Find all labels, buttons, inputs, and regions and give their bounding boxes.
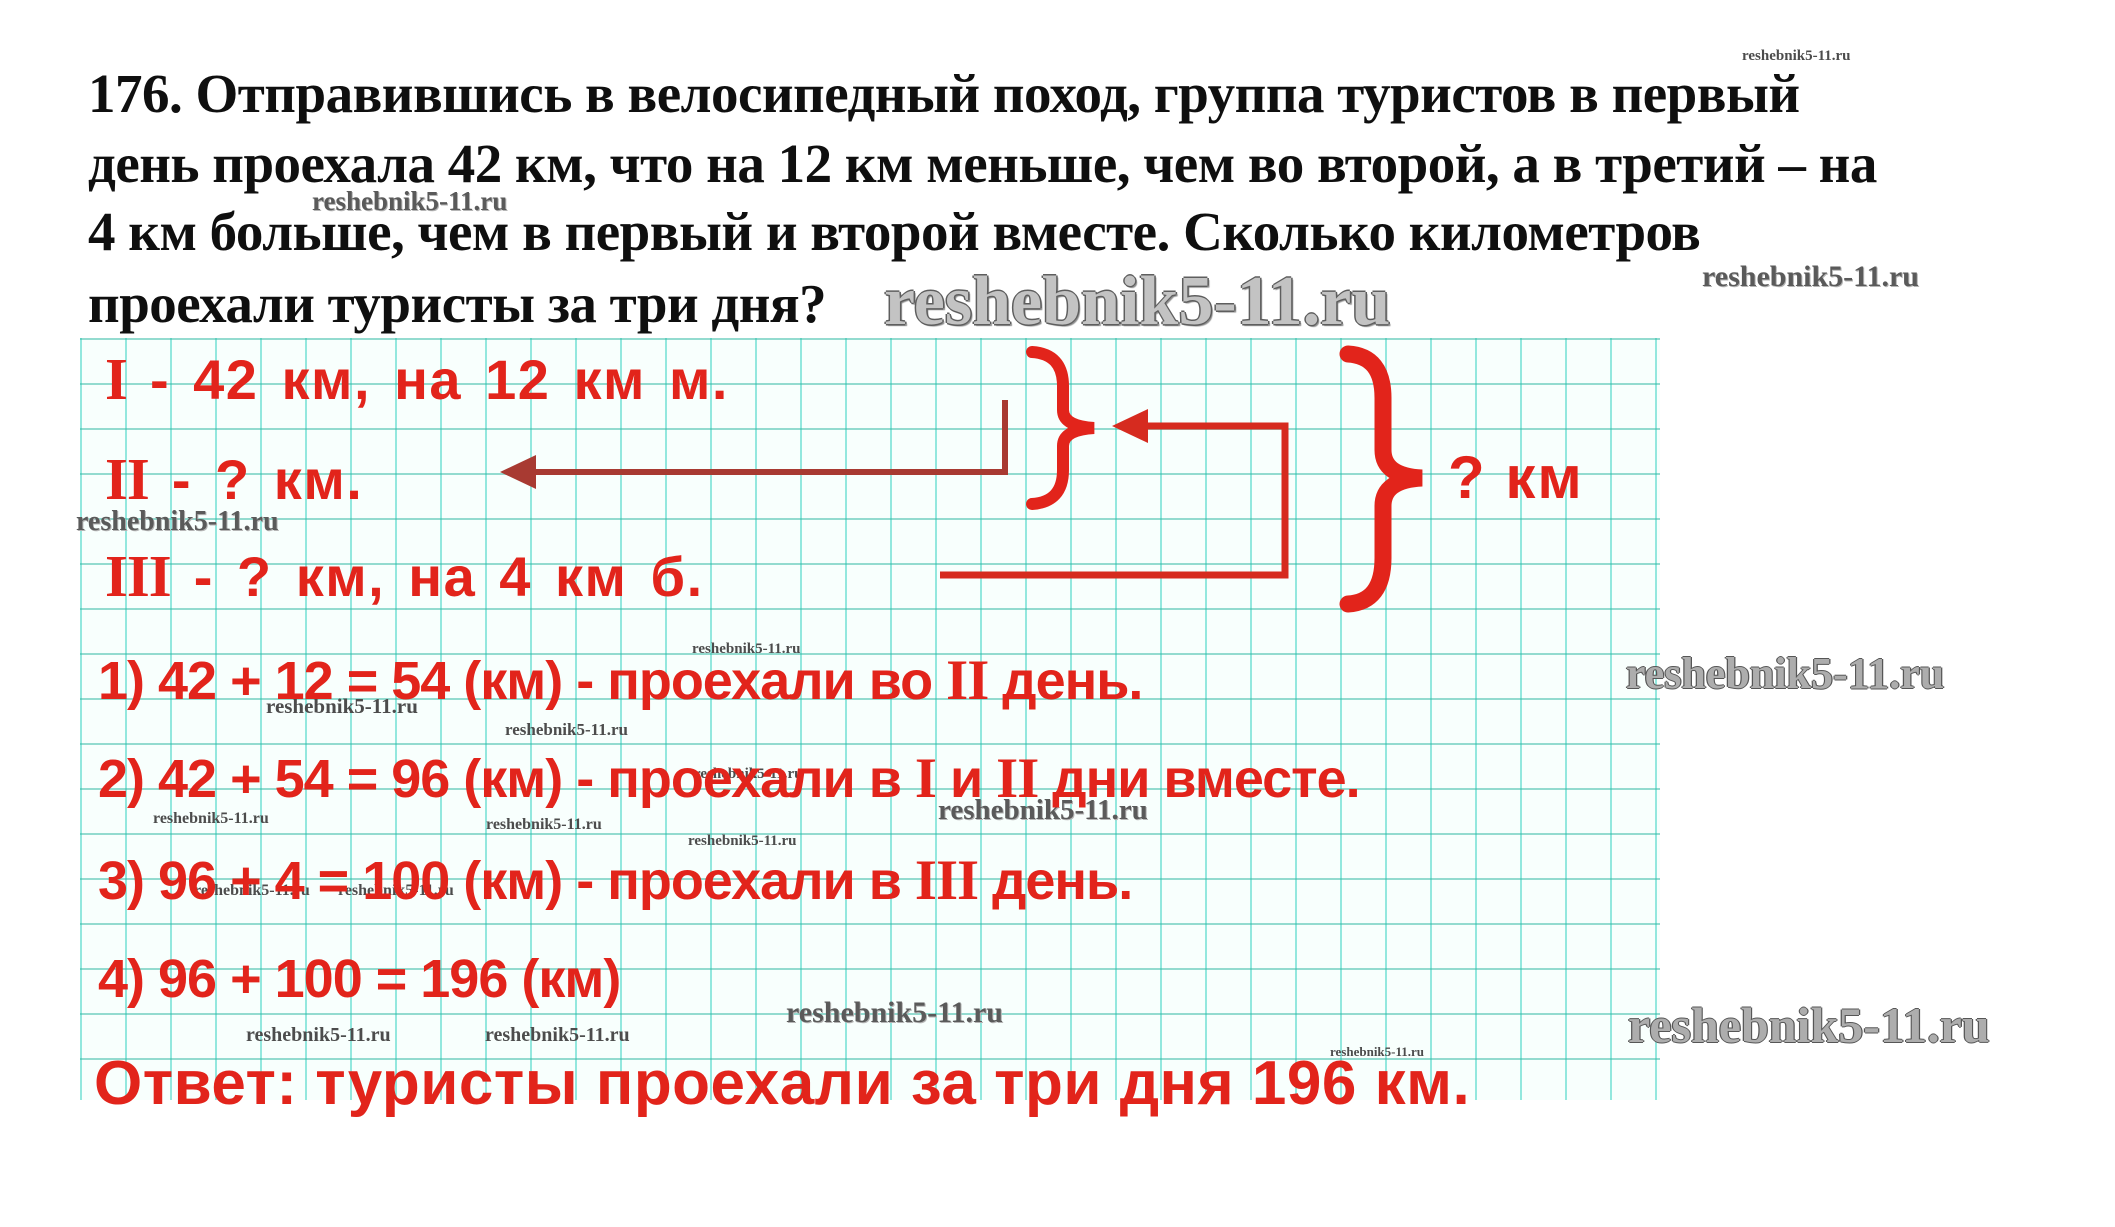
- roman-numeral-1: I: [105, 347, 127, 412]
- step2-tail: дни вместе.: [1038, 749, 1359, 809]
- watermark: reshebnik5-11.ru: [246, 1024, 391, 1047]
- solution-step-2: 2) 42 + 54 = 96 (км) - проехали в I и II…: [98, 746, 1360, 811]
- diagram-total-label: ? км: [1448, 443, 1584, 512]
- diagram-row-day1-text: - 42 км, на 12 км м.: [127, 348, 729, 411]
- step3-text: 3) 96 + 4 = 100 (км) - проехали в: [98, 851, 915, 911]
- step1-tail: день.: [988, 651, 1142, 711]
- step2-roman-a: I: [915, 747, 936, 810]
- roman-numeral-3: III: [105, 544, 171, 609]
- diagram-row-day1: I - 42 км, на 12 км м.: [105, 346, 729, 413]
- step2-mid: и: [936, 749, 996, 809]
- solution-step-4: 4) 96 + 100 = 196 (км): [98, 948, 620, 1010]
- watermark: reshebnik5-11.ru: [505, 720, 628, 740]
- problem-text-line-4: проехали туристы за три дня?: [88, 272, 826, 335]
- watermark: reshebnik5-11.ru: [485, 1024, 630, 1047]
- problem-text-line-1: 176. Отправившись в велосипедный поход, …: [88, 62, 1800, 125]
- problem-text-line-3: 4 км больше, чем в первый и второй вмест…: [88, 200, 1700, 263]
- step1-roman: II: [946, 649, 988, 712]
- watermark: reshebnik5-11.ru: [1702, 260, 1919, 294]
- solution-answer: Ответ: туристы проехали за три дня 196 к…: [94, 1048, 1470, 1119]
- watermark: reshebnik5-11.ru: [486, 816, 602, 834]
- watermark: reshebnik5-11.ru: [1628, 996, 1990, 1054]
- solution-step-3: 3) 96 + 4 = 100 (км) - проехали в III де…: [98, 848, 1132, 913]
- solution-step-1: 1) 42 + 12 = 54 (км) - проехали во II де…: [98, 648, 1142, 713]
- roman-numeral-2: II: [105, 447, 149, 512]
- watermark: reshebnik5-11.ru: [1626, 648, 1944, 699]
- step2-text: 2) 42 + 54 = 96 (км) - проехали в: [98, 749, 915, 809]
- step2-roman-b: II: [996, 747, 1038, 810]
- page: { "problem": { "lines": [ "176. Отправив…: [0, 0, 2115, 1227]
- step1-text: 1) 42 + 12 = 54 (км) - проехали во: [98, 651, 946, 711]
- watermark: reshebnik5-11.ru: [153, 810, 269, 828]
- diagram-row-day3: III - ? км, на 4 км б.: [105, 543, 704, 610]
- diagram-row-day2: II - ? км.: [105, 446, 363, 513]
- step3-roman: III: [915, 849, 978, 912]
- watermark: reshebnik5-11.ru: [884, 262, 1390, 342]
- step3-tail: день.: [978, 851, 1132, 911]
- problem-text-line-2: день проехала 42 км, что на 12 км меньше…: [88, 132, 1877, 195]
- diagram-row-day3-text: - ? км, на 4 км б.: [171, 545, 704, 608]
- step4-text: 4) 96 + 100 = 196 (км): [98, 949, 620, 1009]
- watermark: reshebnik5-11.ru: [786, 996, 1003, 1030]
- diagram-row-day2-text: - ? км.: [149, 448, 364, 511]
